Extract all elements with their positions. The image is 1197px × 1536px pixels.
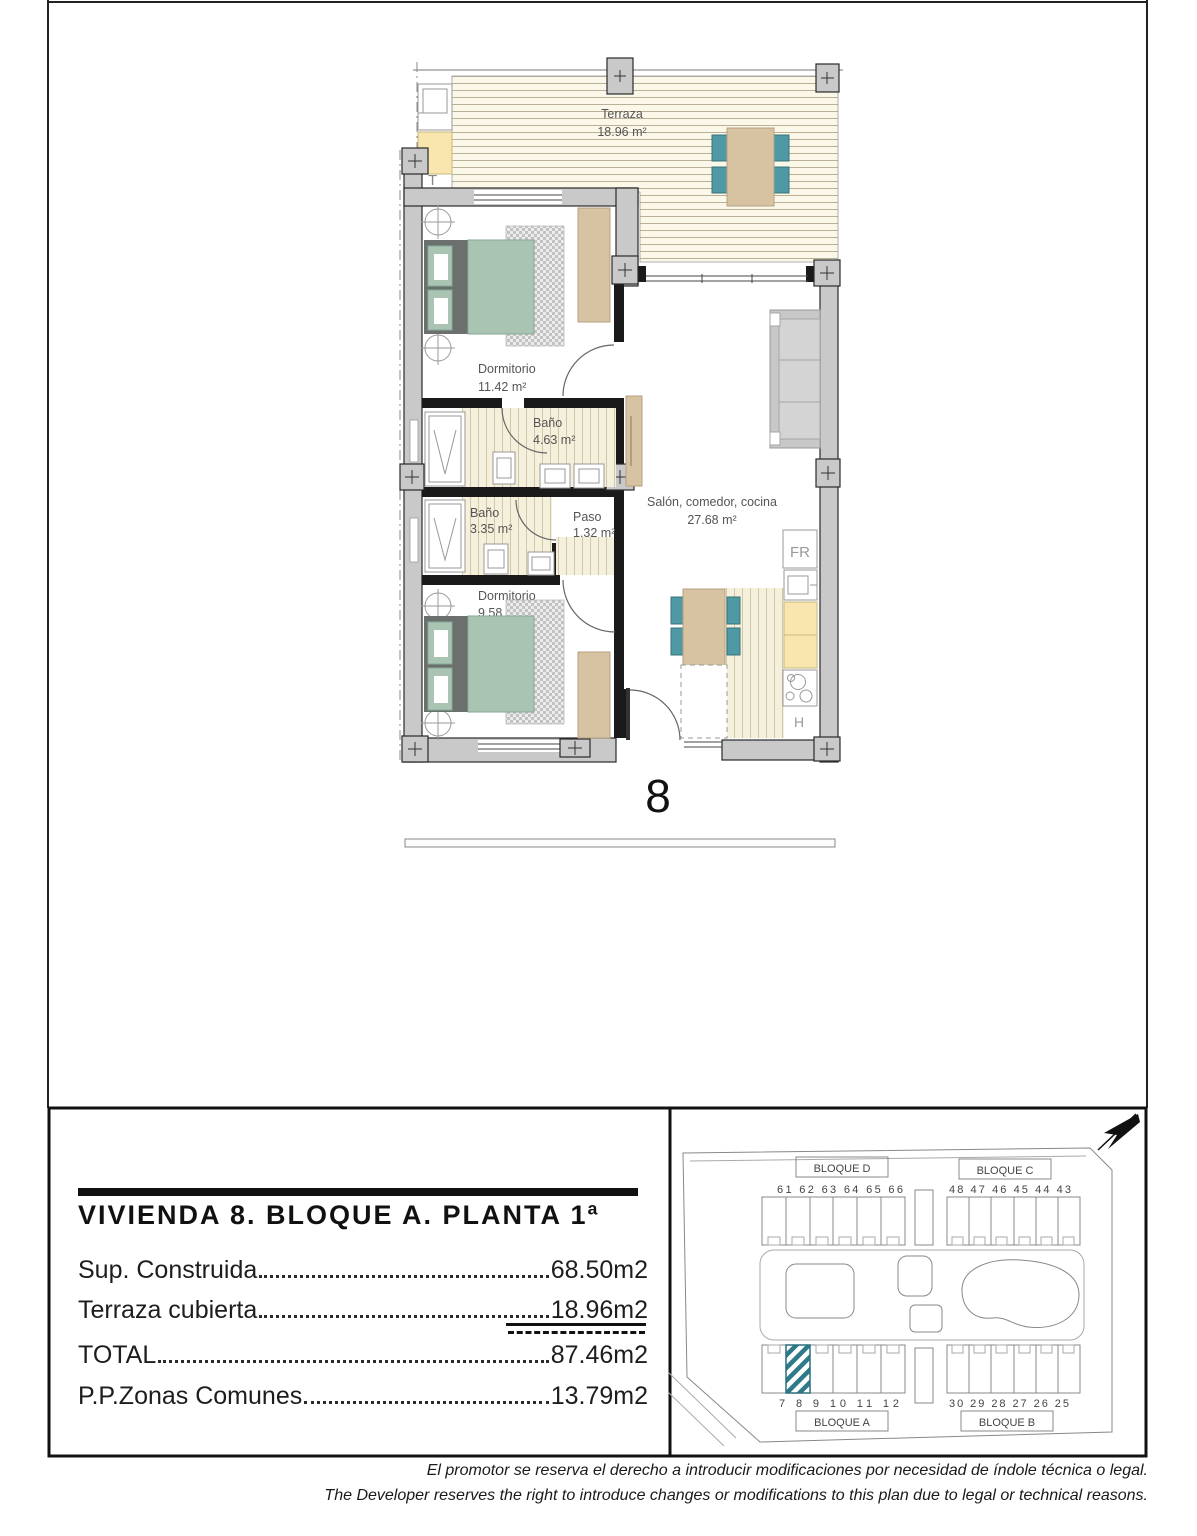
spec-title: VIVIENDA 8. BLOQUE A. PLANTA 1ª [78,1200,653,1231]
spec-row: P.P.Zonas Comunes 13.79m2 [78,1382,648,1411]
window-icon [684,742,722,747]
chair-icon [671,597,684,624]
kitchen: FR H [783,530,817,730]
pillar-icon [400,464,424,490]
building-block-b [947,1345,1080,1393]
sofa-icon [770,310,820,448]
cooktop-icon [783,670,817,706]
pillar-icon [560,739,590,757]
dot-leader [158,1360,548,1363]
table-icon [683,589,725,667]
chair-icon [712,167,729,193]
room-label: Dormitorio [478,362,536,376]
hallway: Paso 1.32 m² [573,510,615,540]
block-label: BLOQUE C [977,1165,1034,1177]
block-label: BLOQUE A [814,1417,870,1429]
bed-icon [424,240,534,334]
pillar-icon [814,260,840,286]
disclaimer-english: The Developer reserves the right to intr… [0,1487,1148,1505]
ceiling-light-icon [421,205,455,239]
spa-icon [898,1256,932,1296]
unit-numbers: 7 8 9 10 11 12 [779,1398,899,1410]
chair-icon [772,167,789,193]
door-arc-icon [563,345,614,396]
sink-icon [540,464,570,488]
room-area: 18.96 m² [597,125,646,139]
shower-icon [425,500,465,572]
block-label: BLOQUE D [814,1163,871,1175]
site-plan: BLOQUE D BLOQUE C 61 62 63 64 65 66 48 4… [668,1114,1140,1446]
kitchen-sink-icon [784,570,817,600]
spec-row: Sup. Construida 68.50m2 [78,1256,648,1285]
dot-leader [304,1401,548,1404]
pillar-icon [402,736,428,762]
block-label: BLOQUE B [979,1417,1035,1429]
terrace-marker-label: T [428,172,437,189]
spec-row-value: 87.46m2 [551,1341,648,1370]
spec-row-label: TOTAL [78,1341,156,1370]
bedroom-2: Dormitorio 9.58 m² [421,589,610,740]
window-icon [474,190,562,204]
room-label: Baño [470,506,499,520]
table-icon [727,128,774,206]
scale-bar [405,839,835,847]
disclaimer-spanish: El promotor se reserva el derecho a intr… [0,1462,1148,1480]
room-area: 11.42 m² [478,380,526,394]
pillar-icon [816,64,839,92]
oven-label: H [794,714,804,730]
page: T Terraza 18.96 m² [0,0,1197,1536]
pool-icon [962,1260,1079,1328]
unit-numbers: 48 47 46 45 44 43 [949,1184,1071,1196]
building-block-d [762,1197,905,1245]
spec-row: Terraza cubierta 18.96m2 [78,1296,648,1325]
window-slit-icon [410,518,418,562]
dot-leader [259,1275,548,1278]
stair-core-icon [915,1190,933,1245]
bed-icon [424,616,534,712]
room-label: Baño [533,416,562,430]
chair-icon [671,628,684,655]
spec-row: TOTAL 87.46m2 [78,1341,648,1370]
spec-row-label: Sup. Construida [78,1256,257,1285]
sink-icon [528,552,554,575]
pillar-icon [814,737,840,761]
tv-unit-icon [626,396,642,486]
sum-rule-solid [506,1323,646,1326]
living-room: Salón, comedor, cocina 27.68 m² FR [626,310,820,738]
fridge-icon: FR [783,530,817,568]
unit-number: 8 [645,770,671,822]
chair-icon [727,628,740,655]
terrace-window-icon [418,84,452,130]
spec-row-label: Terraza cubierta [78,1296,257,1325]
room-area: 27.68 m² [687,513,736,527]
spec-row-value: 13.79m2 [551,1382,648,1411]
ceiling-light-icon [421,331,455,365]
toilet-icon [484,544,508,574]
wardrobe-icon [578,652,610,738]
spec-row-label: P.P.Zonas Comunes [78,1382,302,1411]
shower-icon [425,412,465,486]
chair-icon [772,135,789,161]
highlighted-unit [786,1345,810,1393]
chair-icon [727,597,740,624]
toilet-icon [493,452,515,484]
door-arc-icon [563,580,615,632]
unit-numbers: 61 62 63 64 65 66 [777,1184,903,1196]
fridge-label: FR [790,544,810,561]
room-area: 1.32 m² [573,526,615,540]
pillar-icon [402,148,428,174]
door-leaf-icon [626,688,630,740]
building-block-a [762,1345,905,1393]
counter-projection-icon [681,665,727,738]
room-label: Salón, comedor, cocina [647,495,777,509]
dot-leader [259,1315,548,1318]
unit-numbers: 30 29 28 27 26 25 [949,1398,1069,1410]
pillar-icon [607,58,633,94]
wardrobe-icon [578,208,610,322]
room-label: Paso [573,510,602,524]
room-area: 3.35 m² [470,522,512,536]
pillar-icon [816,459,840,487]
chair-icon [712,135,729,161]
building-block-c [947,1197,1080,1245]
window-icon [632,266,822,283]
room-area: 4.63 m² [533,433,575,447]
spec-row-value: 68.50m2 [551,1256,648,1285]
lawn-icon [786,1264,854,1318]
window-slit-icon [410,420,418,462]
window-icon [478,740,564,752]
plaza-icon [910,1305,942,1332]
spec-title-rule [78,1188,638,1196]
bedroom-1: Dormitorio 11.42 m² [421,205,610,394]
sum-rule-dashed [508,1331,645,1334]
spec-row-value: 18.96m2 [551,1296,648,1325]
sink-icon [574,464,604,488]
pillar-icon [612,256,638,284]
door-arc-icon [630,690,680,740]
north-arrow-icon [1098,1114,1140,1150]
stair-core-icon [915,1348,933,1403]
room-label: Terraza [601,107,643,121]
